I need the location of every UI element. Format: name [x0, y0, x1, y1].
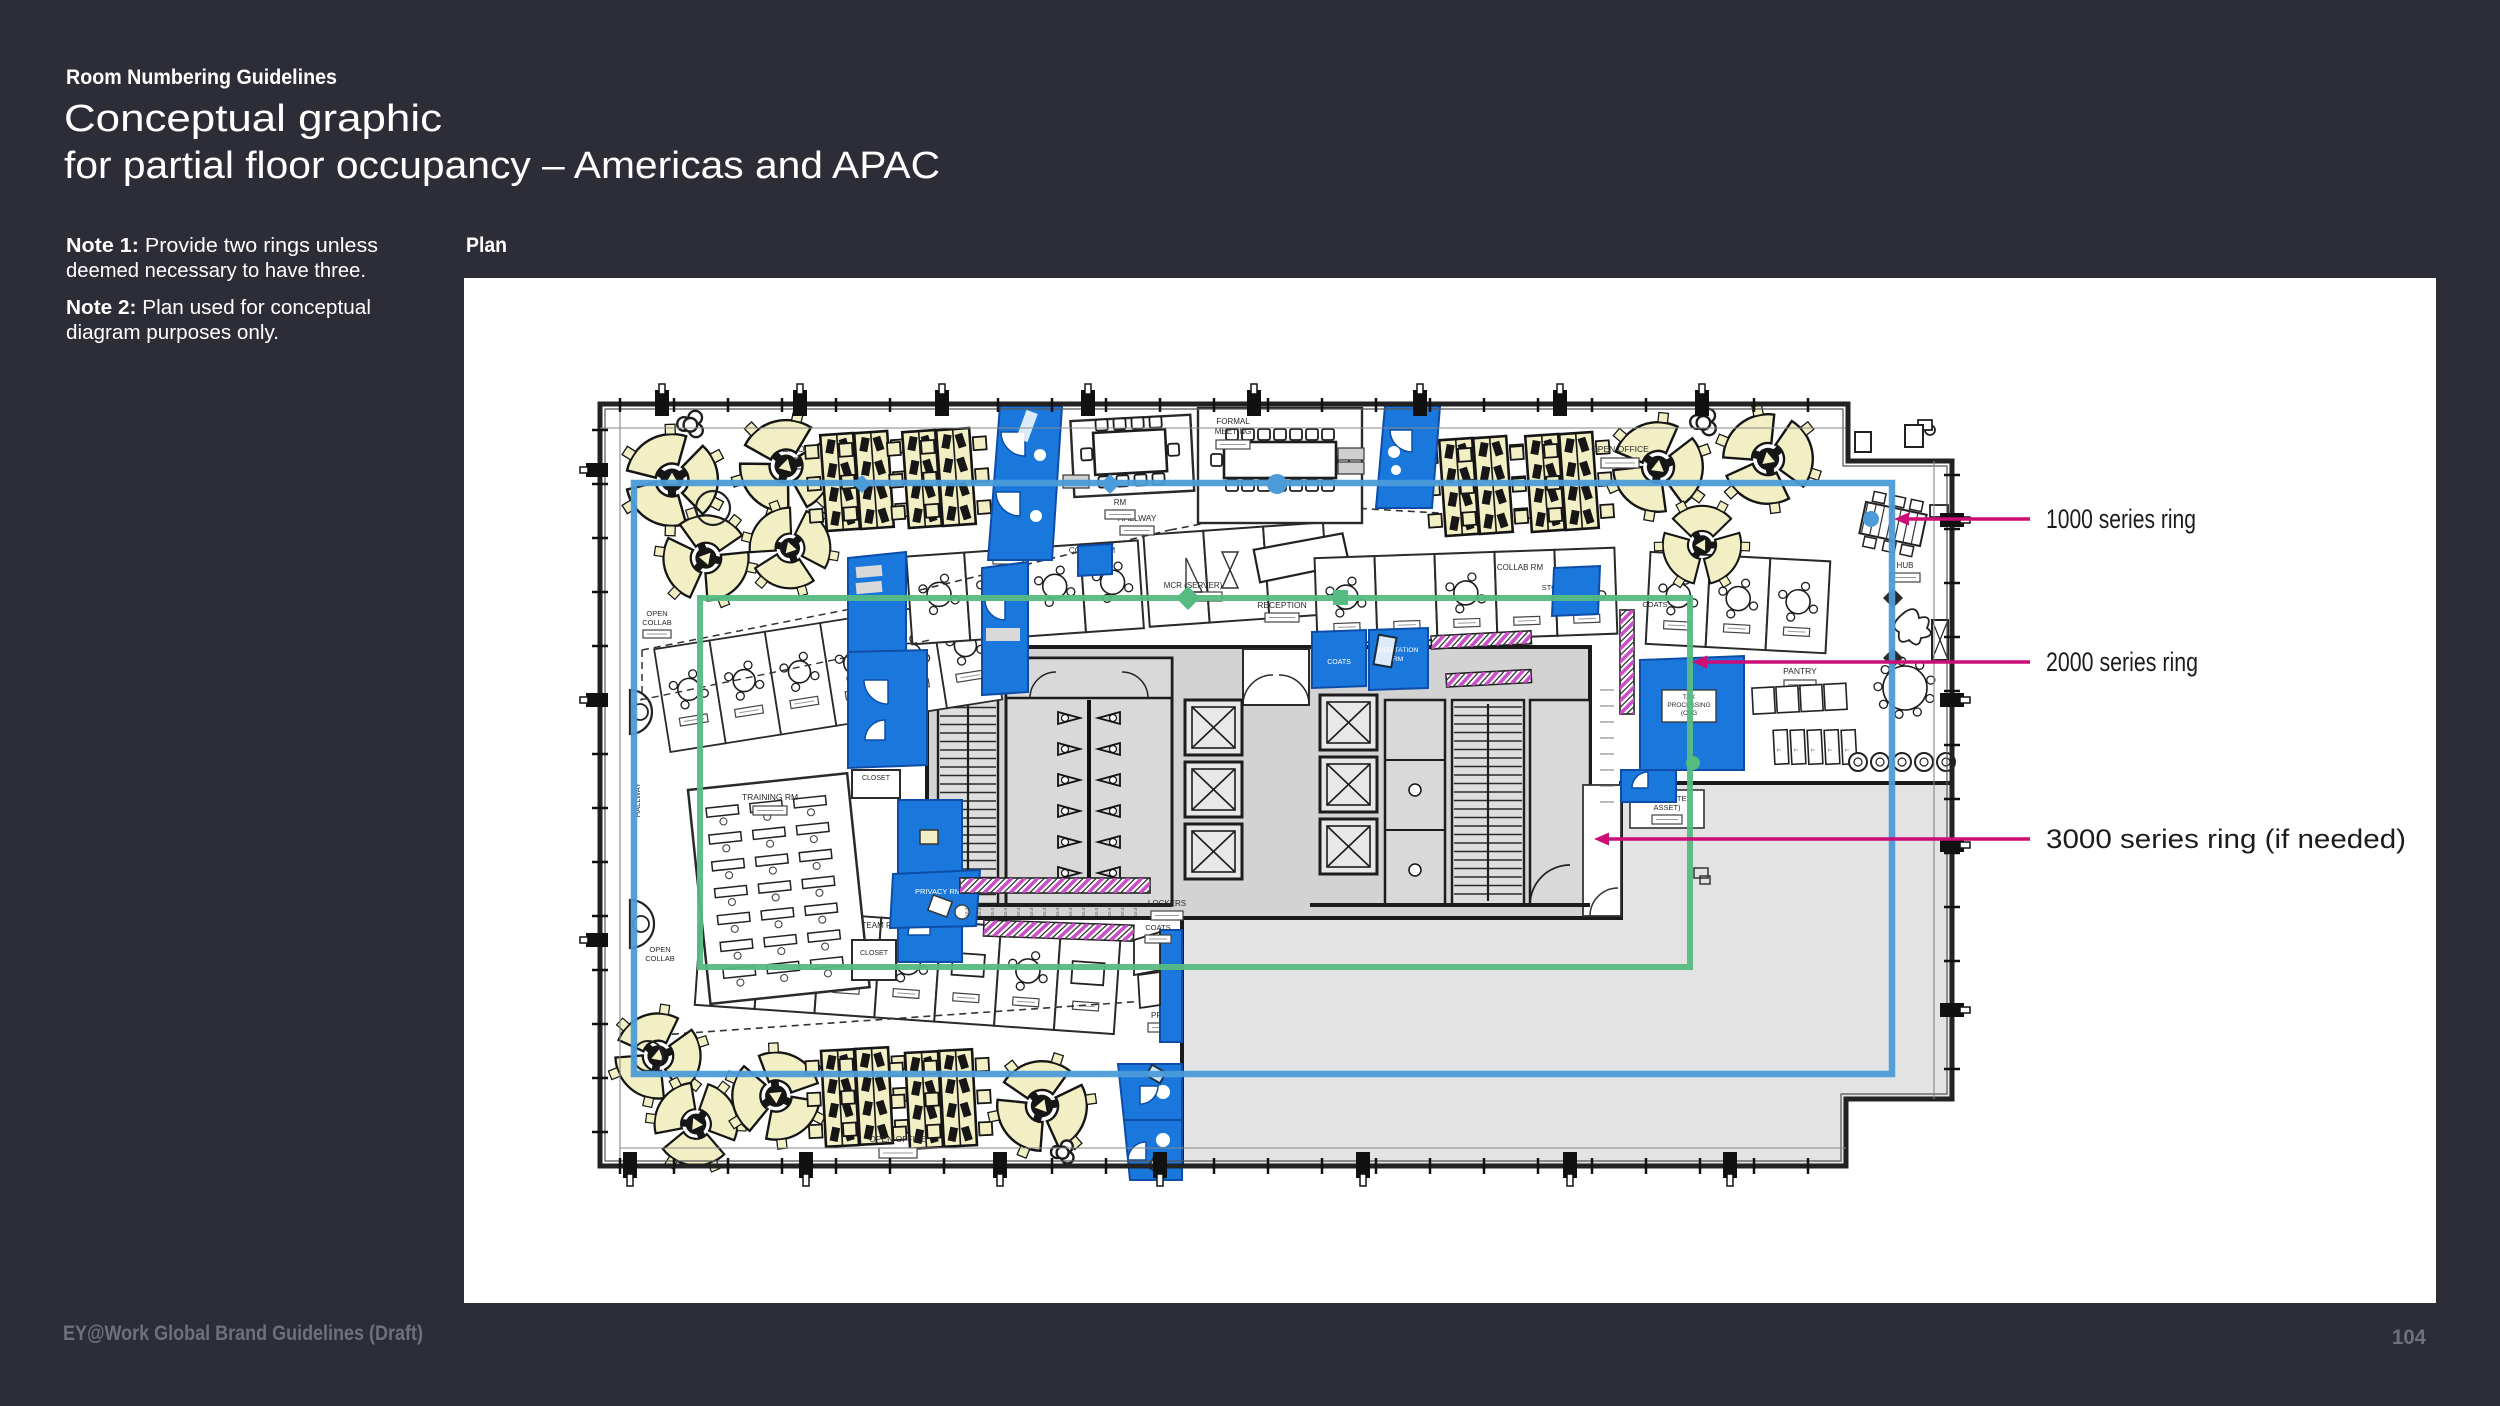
svg-text:15.3: 15.3 [977, 907, 982, 916]
svg-text:T: T [1794, 748, 1800, 751]
svg-text:ASSET): ASSET) [1653, 803, 1681, 812]
svg-text:CLOSET: CLOSET [862, 775, 891, 782]
svg-text:deemed necessary to have three: deemed necessary to have three. [66, 259, 366, 282]
svg-text:PRIVACY RM: PRIVACY RM [915, 887, 961, 896]
svg-text:Conceptual graphic: Conceptual graphic [64, 98, 442, 140]
svg-text:COLLAB: COLLAB [642, 618, 672, 627]
svg-text:PANTRY: PANTRY [1783, 666, 1817, 676]
svg-text:Note 1: Provide two rings unle: Note 1: Provide two rings unless [66, 234, 378, 257]
svg-text:COATS: COATS [1642, 600, 1667, 609]
svg-text:COLLAB RM: COLLAB RM [1497, 563, 1544, 572]
svg-text:15.3: 15.3 [1042, 907, 1047, 916]
svg-text:OPEN: OPEN [646, 609, 667, 618]
svg-text:MCR (SERVER): MCR (SERVER) [1164, 581, 1223, 590]
svg-text:diagram purposes only.: diagram purposes only. [66, 321, 279, 344]
svg-text:COATS: COATS [1327, 659, 1351, 666]
svg-text:104: 104 [2392, 1326, 2426, 1349]
svg-text:15.3: 15.3 [1120, 907, 1125, 916]
svg-text:15.3: 15.3 [1055, 907, 1060, 916]
svg-text:15.3: 15.3 [1107, 907, 1112, 916]
svg-text:COATS: COATS [1145, 923, 1170, 932]
svg-text:FORMAL: FORMAL [1216, 417, 1250, 426]
svg-text:Note 2: Plan used for conceptu: Note 2: Plan used for conceptual [66, 296, 371, 319]
svg-text:EY@Work Global Brand Guideline: EY@Work Global Brand Guidelines (Draft) [63, 1322, 423, 1345]
svg-text:CLOSET: CLOSET [860, 950, 889, 957]
svg-text:OPEN OFFICE: OPEN OFFICE [869, 1134, 927, 1144]
svg-text:15.3: 15.3 [1068, 907, 1073, 916]
svg-text:15.3: 15.3 [990, 907, 995, 916]
svg-text:OPEN OFFICE: OPEN OFFICE [1591, 444, 1649, 454]
svg-text:HUB: HUB [1897, 561, 1914, 570]
svg-text:15.3: 15.3 [1133, 907, 1138, 916]
svg-text:TRAINING RM: TRAINING RM [742, 792, 798, 802]
svg-text:LOCKERS: LOCKERS [1148, 899, 1186, 908]
svg-text:for partial floor occupancy –: for partial floor occupancy – Americas a… [64, 145, 940, 187]
svg-text:T: T [1828, 748, 1834, 751]
svg-text:T: T [1777, 748, 1783, 751]
svg-text:1000 series ring: 1000 series ring [2046, 504, 2196, 534]
svg-text:15.3: 15.3 [1016, 907, 1021, 916]
svg-text:OPEN: OPEN [649, 945, 670, 954]
svg-text:2000 series ring: 2000 series ring [2046, 647, 2198, 677]
svg-text:RECEPTION: RECEPTION [1257, 600, 1307, 610]
svg-text:15.3: 15.3 [1029, 907, 1034, 916]
svg-text:15.3: 15.3 [1081, 907, 1086, 916]
svg-text:3000 series ring (if needed): 3000 series ring (if needed) [2046, 824, 2406, 854]
svg-text:RM: RM [1393, 656, 1404, 663]
svg-text:T: T [1845, 748, 1851, 751]
svg-text:RM: RM [1114, 498, 1127, 507]
svg-text:15.3: 15.3 [964, 907, 969, 916]
svg-text:15.3: 15.3 [1003, 907, 1008, 916]
svg-text:15.3: 15.3 [1094, 907, 1099, 916]
svg-text:COLLAB: COLLAB [645, 954, 675, 963]
svg-text:T: T [1811, 748, 1817, 751]
svg-text:Plan: Plan [466, 234, 507, 257]
svg-text:Room Numbering Guidelines: Room Numbering Guidelines [66, 66, 337, 89]
